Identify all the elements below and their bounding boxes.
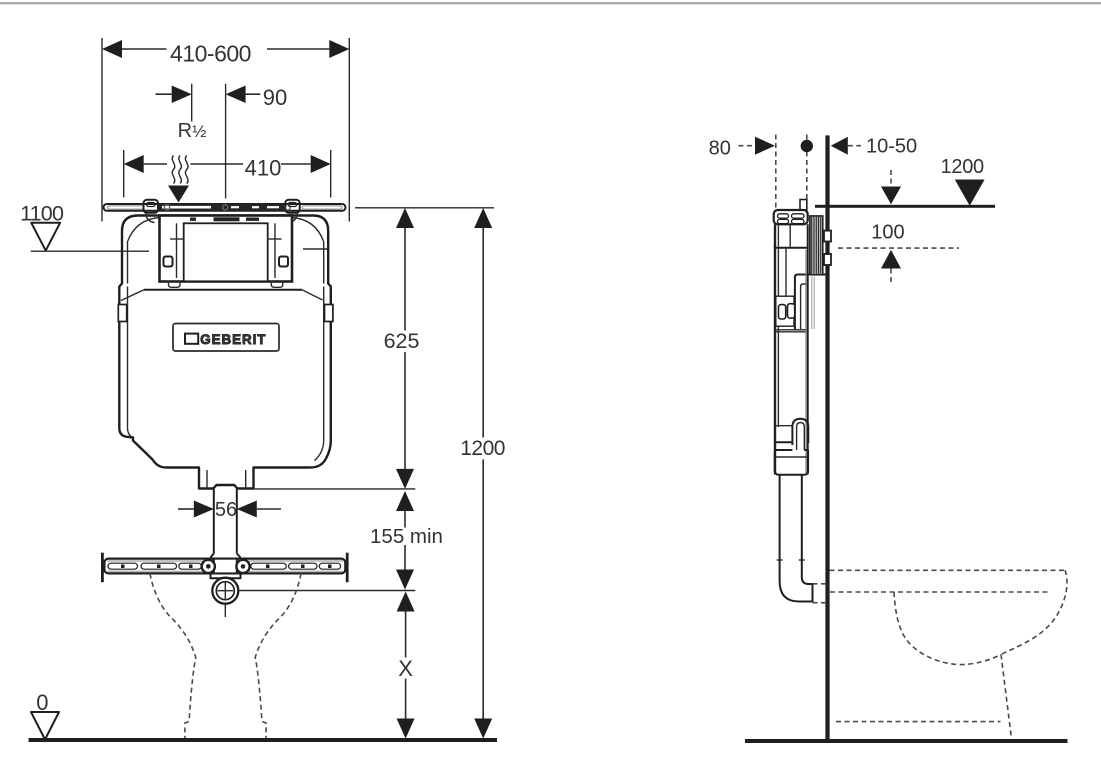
svg-text:10-50: 10-50 bbox=[866, 136, 917, 158]
svg-text:410-600: 410-600 bbox=[170, 40, 251, 66]
svg-text:GEBERIT: GEBERIT bbox=[200, 332, 266, 347]
svg-text:100: 100 bbox=[871, 222, 904, 244]
svg-text:410: 410 bbox=[245, 156, 282, 181]
svg-text:56: 56 bbox=[215, 499, 237, 521]
svg-text:90: 90 bbox=[263, 85, 287, 110]
svg-text:80: 80 bbox=[709, 137, 731, 159]
svg-text:1200: 1200 bbox=[941, 156, 984, 178]
svg-text:1200: 1200 bbox=[460, 437, 505, 460]
svg-text:625: 625 bbox=[384, 329, 420, 353]
svg-text:155 min: 155 min bbox=[370, 525, 443, 548]
svg-text:R½: R½ bbox=[178, 120, 207, 142]
svg-text:X: X bbox=[398, 656, 413, 681]
